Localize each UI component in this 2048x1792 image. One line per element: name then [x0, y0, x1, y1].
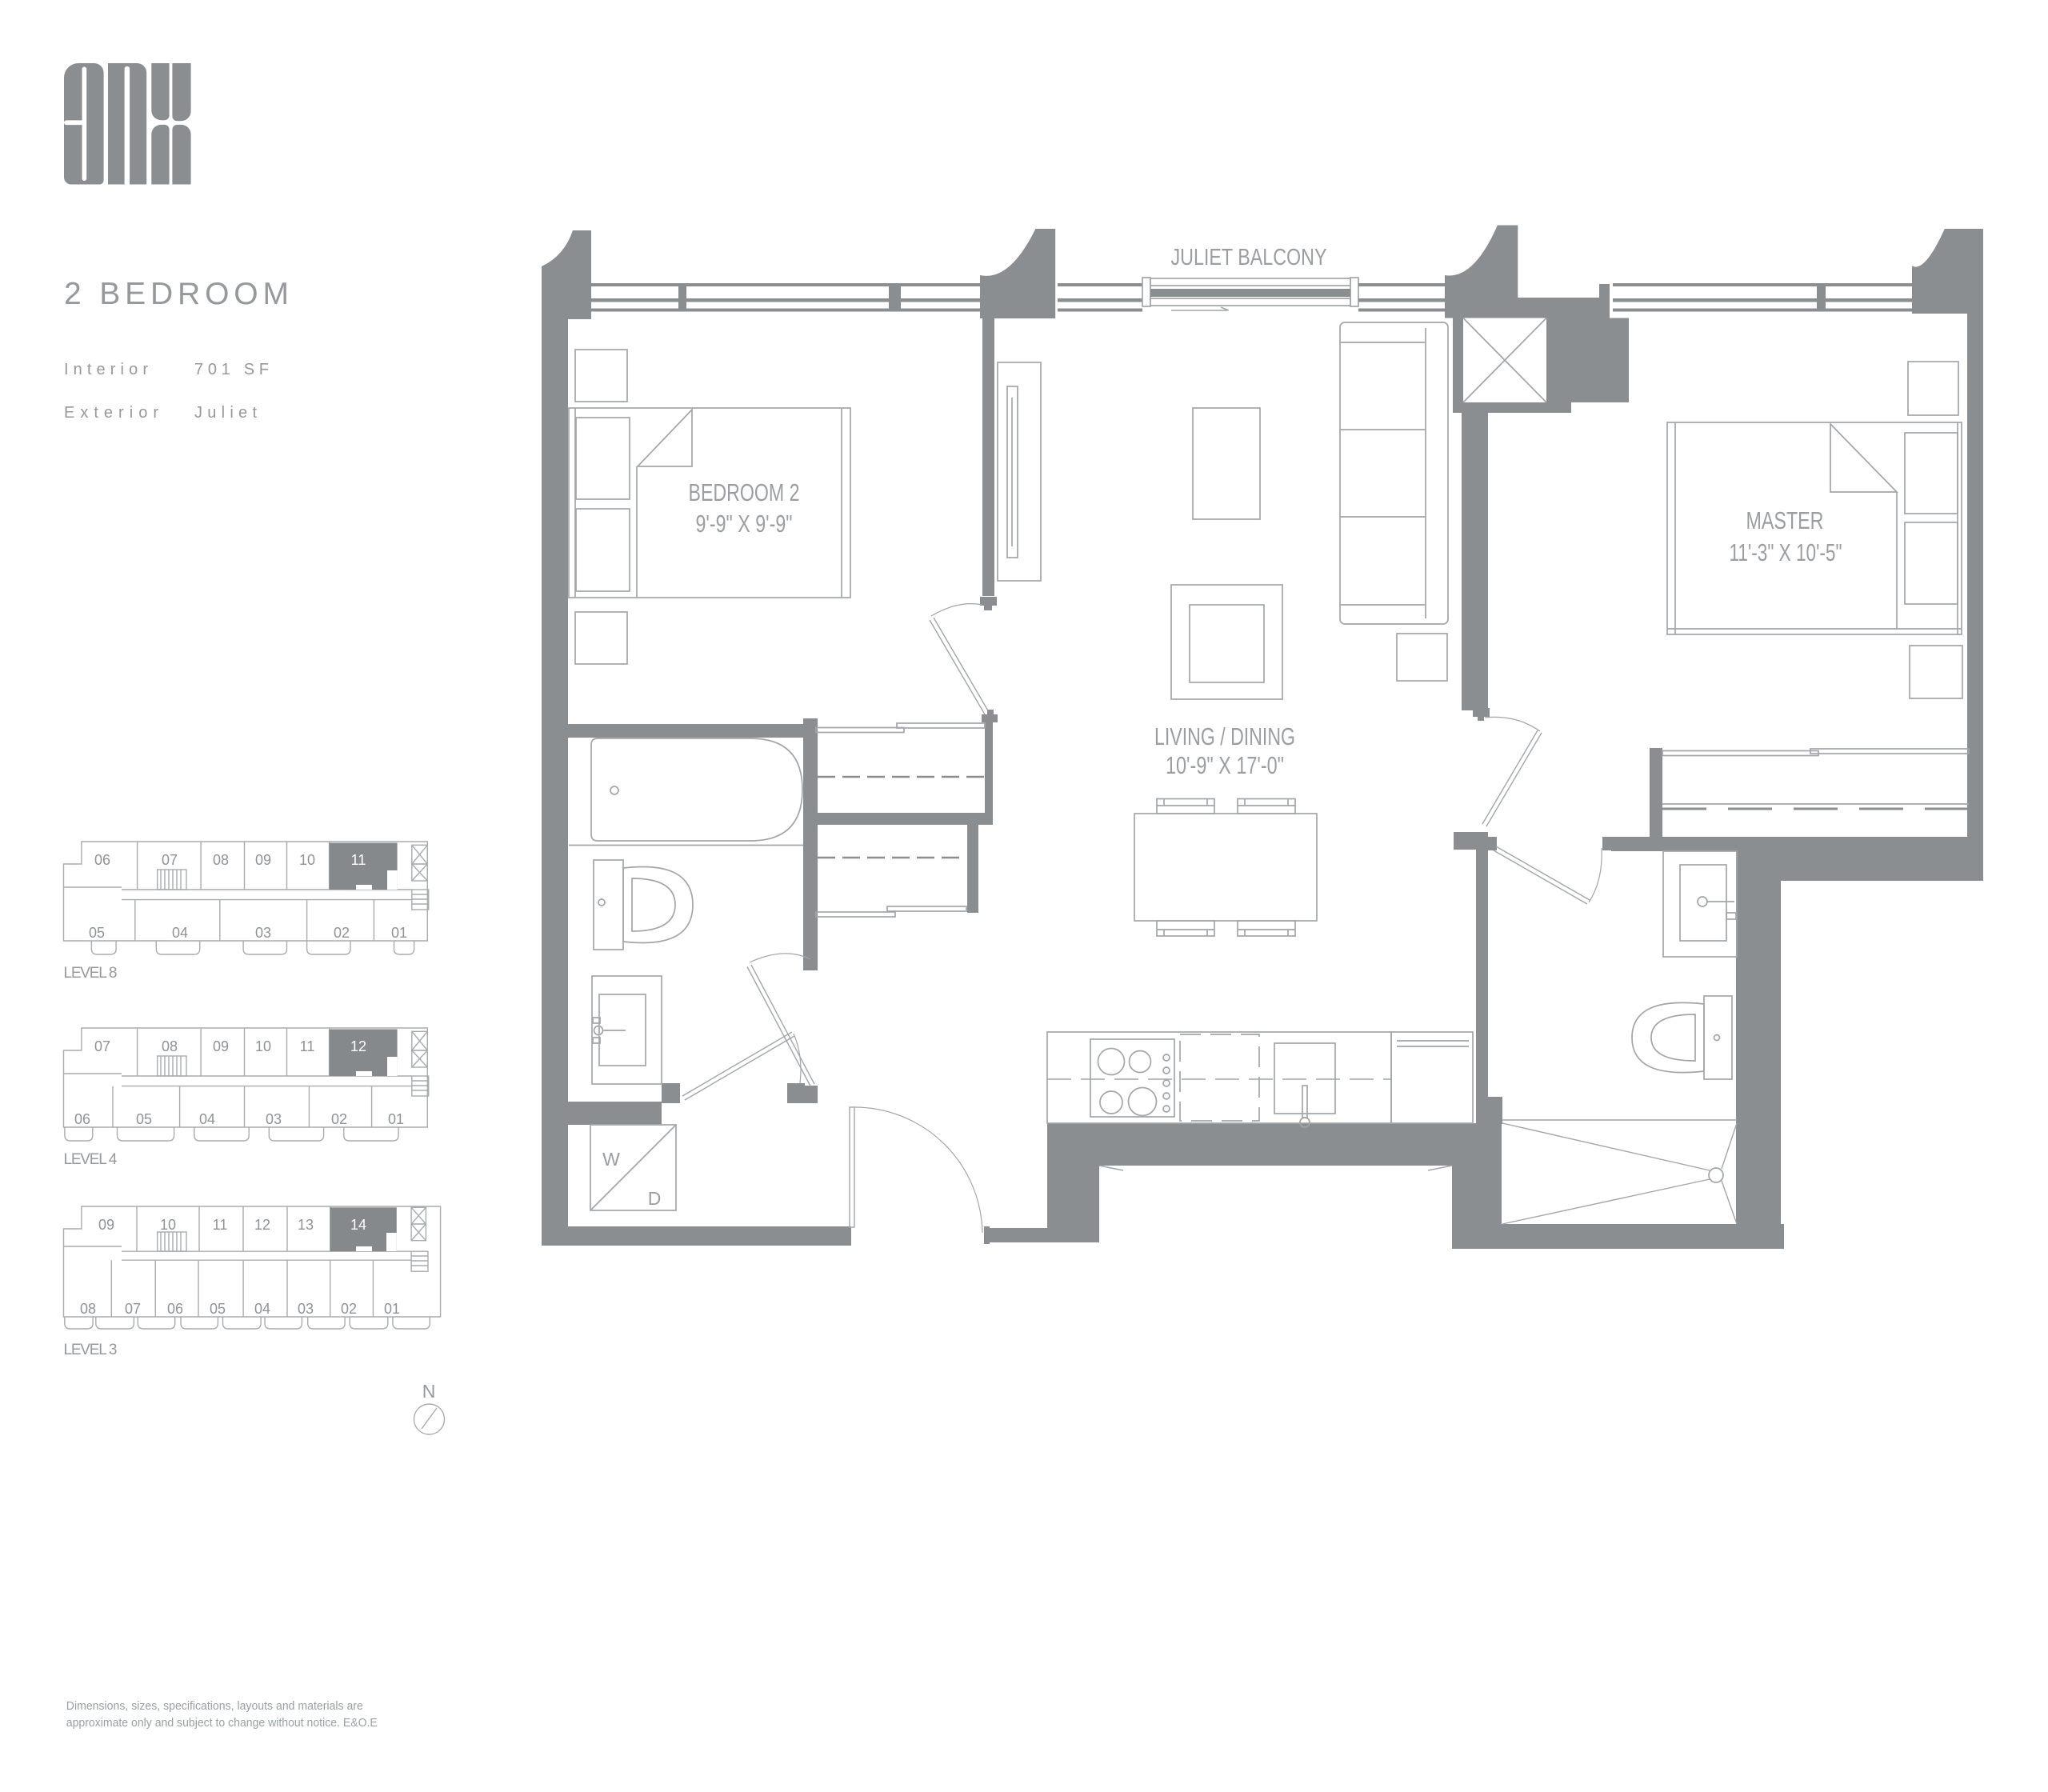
svg-text:LEVEL 8: LEVEL 8 — [64, 965, 118, 982]
svg-text:W: W — [602, 1149, 620, 1170]
svg-text:08: 08 — [162, 1038, 178, 1054]
svg-text:N: N — [422, 1381, 436, 1402]
svg-text:10: 10 — [255, 1038, 271, 1054]
svg-text:11: 11 — [300, 1038, 315, 1054]
svg-text:9'-9" X 9'-9": 9'-9" X 9'-9" — [696, 510, 793, 538]
svg-text:09: 09 — [98, 1217, 114, 1233]
svg-text:11'-3" X 10'-5": 11'-3" X 10'-5" — [1730, 538, 1842, 566]
svg-text:07: 07 — [125, 1301, 141, 1317]
svg-text:MASTER: MASTER — [1746, 506, 1824, 534]
svg-text:06: 06 — [167, 1301, 183, 1317]
svg-text:10: 10 — [160, 1217, 176, 1233]
svg-text:04: 04 — [254, 1301, 270, 1317]
svg-text:03: 03 — [266, 1111, 282, 1127]
svg-text:BEDROOM 2: BEDROOM 2 — [689, 478, 800, 506]
svg-text:05: 05 — [89, 925, 105, 941]
svg-text:08: 08 — [213, 852, 229, 868]
svg-text:06: 06 — [94, 852, 110, 868]
svg-text:03: 03 — [255, 925, 271, 941]
svg-text:LEVEL 3: LEVEL 3 — [64, 1342, 118, 1358]
svg-text:12: 12 — [254, 1217, 270, 1233]
svg-text:14: 14 — [350, 1217, 366, 1233]
svg-text:09: 09 — [213, 1038, 229, 1054]
svg-text:05: 05 — [136, 1111, 152, 1127]
svg-text:10: 10 — [299, 852, 315, 868]
svg-text:09: 09 — [255, 852, 271, 868]
svg-text:08: 08 — [80, 1301, 96, 1317]
svg-text:01: 01 — [384, 1301, 400, 1317]
svg-text:13: 13 — [298, 1217, 314, 1233]
svg-text:LIVING / DINING: LIVING / DINING — [1154, 722, 1295, 750]
svg-text:02: 02 — [331, 1111, 347, 1127]
svg-text:12: 12 — [350, 1038, 366, 1054]
svg-text:11: 11 — [213, 1217, 228, 1233]
svg-text:11: 11 — [351, 852, 366, 868]
svg-text:10'-9" X 17'-0": 10'-9" X 17'-0" — [1166, 751, 1284, 779]
svg-text:05: 05 — [210, 1301, 226, 1317]
svg-text:03: 03 — [298, 1301, 314, 1317]
svg-text:D: D — [648, 1188, 662, 1209]
svg-text:06: 06 — [74, 1111, 90, 1127]
svg-text:LEVEL 4: LEVEL 4 — [64, 1151, 118, 1168]
svg-text:Dimensions, sizes, specificati: Dimensions, sizes, specifications, layou… — [66, 1699, 363, 1713]
svg-text:07: 07 — [162, 852, 178, 868]
svg-text:04: 04 — [172, 925, 188, 941]
svg-text:approximate only and subject t: approximate only and subject to change w… — [66, 1716, 378, 1730]
svg-text:02: 02 — [334, 925, 350, 941]
svg-text:07: 07 — [94, 1038, 110, 1054]
svg-text:01: 01 — [388, 1111, 404, 1127]
svg-text:02: 02 — [341, 1301, 357, 1317]
svg-text:01: 01 — [391, 925, 407, 941]
svg-text:04: 04 — [199, 1111, 215, 1127]
svg-text:JULIET BALCONY: JULIET BALCONY — [1171, 245, 1327, 270]
